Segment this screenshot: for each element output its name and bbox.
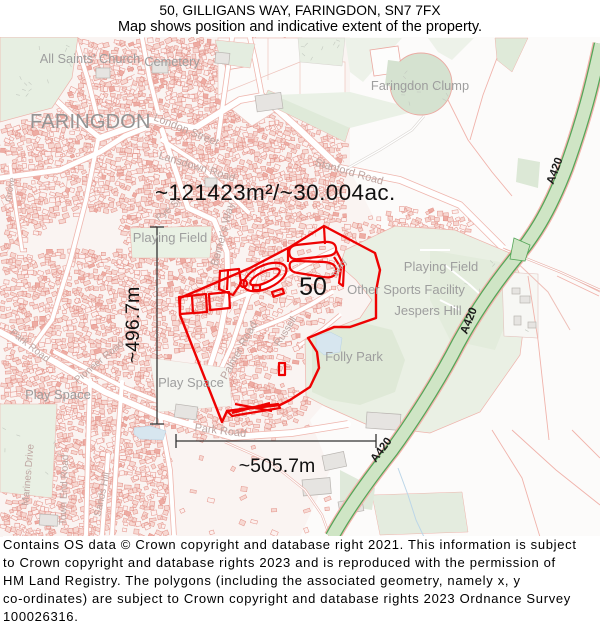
svg-text:Other Sports Facility: Other Sports Facility xyxy=(347,282,465,297)
svg-text:Jespers Hill: Jespers Hill xyxy=(394,303,461,318)
svg-text:~505.7m: ~505.7m xyxy=(239,455,315,477)
svg-text:Play Space: Play Space xyxy=(25,387,91,402)
svg-text:50: 50 xyxy=(299,273,327,301)
svg-text:Playing Field: Playing Field xyxy=(133,230,207,245)
svg-text:FARINGDON: FARINGDON xyxy=(30,111,151,133)
svg-text:Faringdon Clump: Faringdon Clump xyxy=(371,78,469,93)
svg-text:Folly Park: Folly Park xyxy=(325,349,383,364)
svg-text:Play Space: Play Space xyxy=(158,375,224,390)
svg-text:Playing Field: Playing Field xyxy=(404,259,478,274)
svg-text:Cemetery: Cemetery xyxy=(144,54,200,69)
svg-text:~496.7m: ~496.7m xyxy=(122,287,144,363)
svg-text:All Saints' Church: All Saints' Church xyxy=(40,51,141,66)
svg-text:~121423m²/~30.004ac.: ~121423m²/~30.004ac. xyxy=(155,180,396,205)
